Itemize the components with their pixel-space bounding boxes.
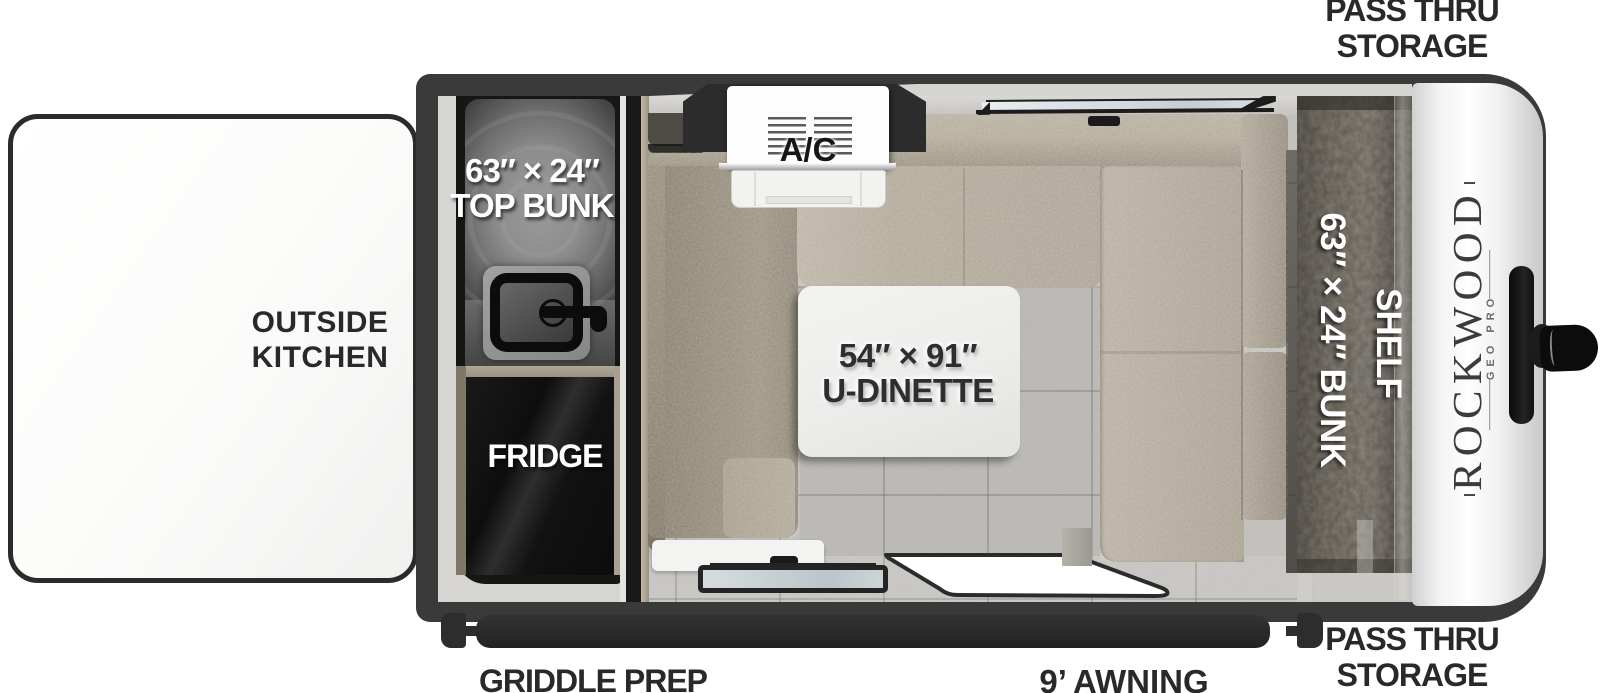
svg-text:GEO PRO: GEO PRO — [1485, 294, 1497, 380]
svg-text:ROCKWOOD: ROCKWOOD — [1444, 189, 1490, 491]
